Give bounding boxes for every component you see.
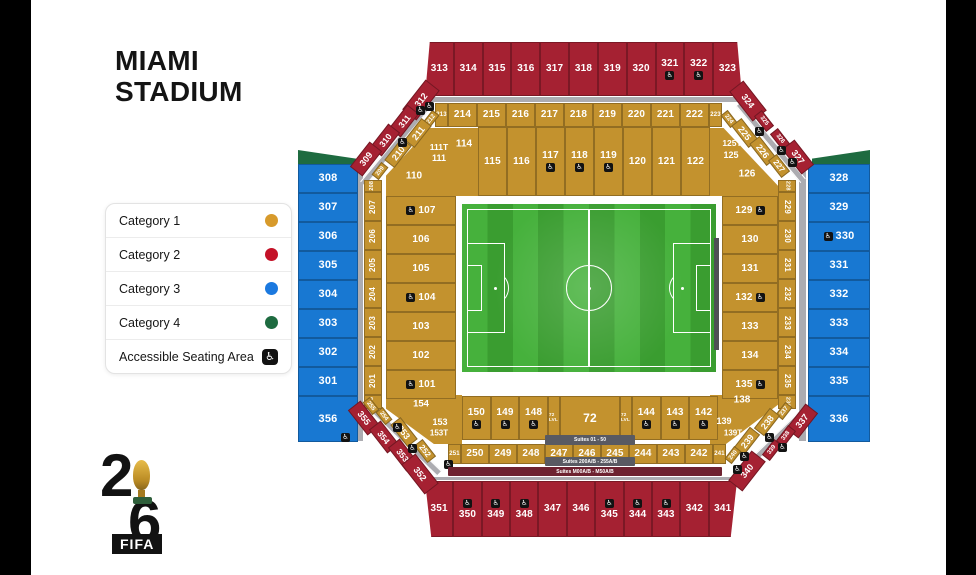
section-328[interactable]: 328 [808, 164, 870, 193]
suites-bar: Suites 200A/B - 255A/B [545, 457, 635, 466]
section-label: 144 [638, 408, 655, 418]
section-label: 207 [369, 200, 377, 214]
center-spot [588, 287, 591, 290]
section-329[interactable]: 329 [808, 193, 870, 222]
section-217[interactable]: 217 [535, 103, 564, 127]
section-label: 332 [830, 289, 849, 300]
section-203[interactable]: 203 [364, 308, 382, 337]
accessible-icon: ♿ [416, 106, 425, 115]
section-222[interactable]: 222 [680, 103, 709, 127]
section-label: 131 [741, 264, 758, 274]
tunnel-bar [714, 238, 719, 350]
section-label: 249 [494, 449, 511, 459]
accessible-icon: ♿ [777, 146, 786, 155]
section-349[interactable]: ♿349 [482, 481, 510, 537]
section-label: 222 [686, 110, 703, 120]
section-label: 356 [319, 414, 338, 425]
section-label: 134 [741, 351, 758, 361]
section-label: 129 [735, 206, 752, 216]
accessible-icon: ♿ [406, 206, 415, 215]
section-110[interactable]: 110 [406, 171, 422, 182]
section-320[interactable]: 320 [627, 42, 656, 96]
section-121[interactable]: 121 [652, 127, 681, 196]
pitch-boundary-line [467, 209, 711, 367]
section-label: 321 [661, 59, 678, 69]
stadium-seat-map-page: MIAMI STADIUM Category 1Category 2Catego… [0, 0, 976, 575]
section-label: 313 [431, 64, 448, 74]
section-label: 72 LVL [621, 413, 631, 422]
section-label: 302 [319, 347, 338, 358]
section-315[interactable]: 315 [483, 42, 512, 96]
section-105[interactable]: 105 [386, 254, 456, 283]
accessible-icon: ♿ [788, 158, 797, 167]
section-label: 150 [468, 408, 485, 418]
category4-corner[interactable] [298, 150, 356, 164]
section-label: 116 [513, 157, 530, 167]
upper-bowl-left: 308307306305304303302301356 [298, 164, 358, 442]
section-label: 235 [783, 374, 791, 388]
section-label: 220 [628, 110, 645, 120]
section-label: 308 [319, 173, 338, 184]
section-215[interactable]: 215 [477, 103, 506, 127]
category4-corner[interactable] [812, 150, 870, 164]
section-305[interactable]: 305 [298, 251, 358, 280]
section-label: 306 [319, 231, 338, 242]
walkway [418, 96, 750, 103]
accessible-icon: ♿ [671, 420, 680, 429]
section-204[interactable]: 204 [364, 279, 382, 308]
section-label: 304 [319, 289, 338, 300]
accessible-icon: ♿ [778, 443, 787, 452]
section-label: 248 [522, 449, 539, 459]
section-label: 317 [546, 64, 563, 74]
section-241[interactable]: 241 [713, 444, 726, 464]
section-205[interactable]: 205 [364, 250, 382, 279]
accessible-icon: ♿ [472, 420, 481, 429]
section-342[interactable]: 342 [680, 481, 708, 537]
section-235[interactable]: 235 [778, 366, 796, 395]
section-318[interactable]: 318 [569, 42, 598, 96]
section-label: 307 [319, 202, 338, 213]
stadium-map: 313314315316317318319320321♿322♿323351♿3… [0, 0, 976, 575]
lower-bowl-bottom: 150♿149♿148♿72 LVL7272 LVL144♿143♿142♿ [462, 396, 718, 440]
accessible-icon: ♿ [733, 465, 742, 474]
section-201[interactable]: 201 [364, 366, 382, 395]
section-221[interactable]: 221 [651, 103, 680, 127]
section-139[interactable]: 139 [716, 416, 731, 426]
section-332[interactable]: 332 [808, 280, 870, 309]
accessible-icon: ♿ [765, 433, 774, 442]
section-label: 217 [541, 110, 558, 120]
club-level-right: 228229230231232233234235236 [778, 180, 796, 409]
section-115[interactable]: 115 [478, 127, 507, 196]
lower-bowl-top: 115116117♿118♿119♿120121122 [478, 127, 710, 196]
section-label: 330 [836, 231, 855, 242]
section-142[interactable]: 142♿ [689, 396, 718, 440]
section-317[interactable]: 317 [540, 42, 569, 96]
section-label: 331 [830, 260, 849, 271]
section-label: 105 [412, 264, 429, 274]
pitch [462, 204, 716, 372]
accessible-icon: ♿ [520, 499, 529, 508]
section-334[interactable]: 334 [808, 338, 870, 367]
section-label: 121 [658, 157, 675, 167]
club-level-top: 213214215216217218219220221222223 [435, 103, 722, 127]
section-306[interactable]: 306 [298, 222, 358, 251]
accessible-icon: ♿ [529, 420, 538, 429]
section-label: 341 [714, 504, 731, 514]
accessible-icon: ♿ [824, 232, 833, 241]
section-label: 348 [516, 510, 533, 520]
accessible-icon: ♿ [406, 380, 415, 389]
section-label: 101 [418, 380, 435, 390]
section-label: 241 [714, 451, 725, 457]
accessible-icon: ♿ [756, 380, 765, 389]
section-label: 301 [319, 376, 338, 387]
section-label: 122 [687, 157, 704, 167]
section-label: 130 [741, 235, 758, 245]
suites-bar: Suites 01 - 50 [545, 435, 635, 445]
section-label: 233 [783, 316, 791, 330]
section-label: 202 [369, 345, 377, 359]
section-341[interactable]: 341 [709, 481, 737, 537]
section-label: 149 [496, 408, 513, 418]
section-233[interactable]: 233 [778, 308, 796, 337]
section-346[interactable]: 346 [567, 481, 595, 537]
section-label: 314 [460, 64, 477, 74]
section-label: 229 [783, 200, 791, 214]
upper-bowl-right: 328329♿330331332333334335336 [808, 164, 870, 442]
section-label: 102 [412, 351, 429, 361]
section-134[interactable]: 134 [722, 341, 778, 370]
section-label: 319 [604, 64, 621, 74]
section-314[interactable]: 314 [454, 42, 483, 96]
section-322[interactable]: 322♿ [684, 42, 713, 96]
section-122[interactable]: 122 [681, 127, 710, 196]
lvl-label-cell: 72 LVL [620, 396, 632, 440]
section-231[interactable]: 231 [778, 250, 796, 279]
section-72[interactable]: 72 [560, 396, 620, 440]
section-label: 133 [741, 322, 758, 332]
section-label: 334 [830, 347, 849, 358]
section-label: 328 [830, 173, 849, 184]
section-153[interactable]: 153 [432, 417, 447, 427]
section-117[interactable]: 117♿ [536, 127, 565, 196]
section-label: 208 [370, 181, 376, 191]
section-350[interactable]: ♿350 [453, 481, 481, 537]
section-label: 230 [783, 229, 791, 243]
accessible-icon: ♿ [501, 420, 510, 429]
section-240[interactable]: 240 [725, 446, 742, 464]
section-308[interactable]: 308 [298, 164, 358, 193]
accessible-icon: ♿ [408, 444, 417, 453]
section-125[interactable]: 125 [723, 150, 738, 160]
penalty-area-right [673, 243, 711, 333]
section-307[interactable]: 307 [298, 193, 358, 222]
section-label: 243 [662, 449, 679, 459]
section-304[interactable]: 304 [298, 280, 358, 309]
accessible-icon: ♿ [642, 420, 651, 429]
section-label: 103 [412, 322, 429, 332]
section-143[interactable]: 143♿ [661, 396, 690, 440]
section-label: 345 [601, 510, 618, 520]
accessible-icon: ♿ [393, 423, 402, 432]
section-218[interactable]: 218 [564, 103, 593, 127]
section-label: 251 [449, 451, 460, 457]
section-label: 228 [784, 181, 790, 191]
section-label: 316 [517, 64, 534, 74]
section-label: 104 [418, 293, 435, 303]
accessible-icon: ♿ [633, 499, 642, 508]
section-219[interactable]: 219 [593, 103, 622, 127]
section-label: 118 [571, 151, 588, 161]
section-129[interactable]: 129♿ [722, 196, 778, 225]
section-label: 148 [525, 408, 542, 418]
section-label: 344 [629, 510, 646, 520]
penalty-arc-left [475, 271, 509, 305]
section-131[interactable]: 131 [722, 254, 778, 283]
section-111T[interactable]: 111T [430, 142, 448, 152]
section-150[interactable]: 150♿ [462, 396, 491, 440]
accessible-icon: ♿ [756, 293, 765, 302]
walkway [425, 476, 737, 481]
section-114[interactable]: 114 [456, 139, 472, 150]
section-103[interactable]: 103 [386, 312, 456, 341]
lower-bowl-right: 129♿130131132♿133134135♿ [722, 196, 778, 399]
penalty-arc-right [669, 271, 703, 305]
center-circle [566, 265, 612, 311]
section-label: 323 [719, 64, 736, 74]
section-144[interactable]: 144♿ [632, 396, 661, 440]
section-104[interactable]: ♿104 [386, 283, 456, 312]
section-label: 72 [583, 412, 597, 424]
section-248[interactable]: 248 [517, 444, 545, 464]
section-234[interactable]: 234 [778, 337, 796, 366]
club-level-left: 208207206205204203202201256 [364, 180, 382, 409]
section-228[interactable]: 228 [778, 180, 796, 192]
section-label: 216 [512, 110, 529, 120]
section-label: 132 [735, 293, 752, 303]
section-label: 305 [319, 260, 338, 271]
section-label: 117 [542, 151, 559, 161]
accessible-icon: ♿ [662, 499, 671, 508]
section-label: 329 [830, 202, 849, 213]
section-138[interactable]: 138 [734, 395, 751, 406]
section-214[interactable]: 214 [448, 103, 477, 127]
section-216[interactable]: 216 [506, 103, 535, 127]
accessible-icon: ♿ [341, 433, 350, 442]
section-345[interactable]: ♿345 [595, 481, 623, 537]
section-230[interactable]: 230 [778, 221, 796, 250]
accessible-icon: ♿ [755, 127, 764, 136]
section-303[interactable]: 303 [298, 309, 358, 338]
section-331[interactable]: 331 [808, 251, 870, 280]
section-250[interactable]: 250 [461, 444, 489, 464]
section-label: 221 [657, 110, 674, 120]
section-319[interactable]: 319 [598, 42, 627, 96]
penalty-spot-right [681, 287, 684, 290]
accessible-icon: ♿ [406, 293, 415, 302]
accessible-icon: ♿ [491, 499, 500, 508]
accessible-icon: ♿ [463, 499, 472, 508]
accessible-icon: ♿ [605, 499, 614, 508]
lower-bowl-left: ♿107106105♿104103102♿101 [386, 196, 456, 399]
section-321[interactable]: 321♿ [656, 42, 685, 96]
section-label: 214 [454, 110, 471, 120]
section-label: 242 [690, 449, 707, 459]
section-label: 343 [657, 510, 674, 520]
section-label: 322 [690, 59, 707, 69]
section-label: 115 [484, 157, 501, 167]
section-153T[interactable]: 153T [430, 429, 448, 438]
section-label: 349 [487, 510, 504, 520]
section-301[interactable]: 301 [298, 367, 358, 396]
section-330[interactable]: ♿330 [808, 222, 870, 251]
section-label: 318 [575, 64, 592, 74]
section-125T[interactable]: 125T [722, 138, 741, 148]
section-347[interactable]: 347 [538, 481, 566, 537]
walkway [799, 160, 806, 442]
section-242[interactable]: 242 [685, 444, 713, 464]
section-208[interactable]: 208 [364, 180, 382, 192]
section-label: 351 [431, 504, 448, 514]
section-202[interactable]: 202 [364, 337, 382, 366]
section-label: 119 [600, 151, 617, 161]
section-106[interactable]: 106 [386, 225, 456, 254]
section-102[interactable]: 102 [386, 341, 456, 370]
section-229[interactable]: 229 [778, 192, 796, 221]
section-206[interactable]: 206 [364, 221, 382, 250]
section-302[interactable]: 302 [298, 338, 358, 367]
section-label: 231 [783, 258, 791, 272]
accessible-icon: ♿ [546, 163, 555, 172]
section-label: 335 [830, 376, 849, 387]
accessible-icon: ♿ [740, 452, 749, 461]
section-111[interactable]: 111 [432, 153, 446, 163]
section-107[interactable]: ♿107 [386, 196, 456, 225]
section-118[interactable]: 118♿ [565, 127, 594, 196]
accessible-icon: ♿ [604, 163, 613, 172]
accessible-icon: ♿ [756, 206, 765, 215]
section-label: 250 [466, 449, 483, 459]
section-label: 205 [369, 258, 377, 272]
section-label: 107 [418, 206, 435, 216]
section-101[interactable]: ♿101 [386, 370, 456, 399]
suites-bar: Suites M00A/B - M50A/B [448, 467, 722, 476]
upper-bowl-bottom: 351♿350♿349♿348347346♿345♿344♿343342341 [425, 481, 737, 537]
section-label: 234 [783, 345, 791, 359]
section-243[interactable]: 243 [657, 444, 685, 464]
section-249[interactable]: 249 [489, 444, 517, 464]
section-344[interactable]: ♿344 [624, 481, 652, 537]
section-120[interactable]: 120 [623, 127, 652, 196]
accessible-icon: ♿ [665, 71, 674, 80]
section-label: 143 [666, 408, 683, 418]
section-label: 106 [412, 235, 429, 245]
section-label: 315 [488, 64, 505, 74]
penalty-area-left [467, 243, 505, 333]
penalty-spot-left [494, 287, 497, 290]
section-label: 204 [369, 287, 377, 301]
section-label: 336 [830, 414, 849, 425]
lvl-label-cell: 72 LVL [548, 396, 560, 440]
section-139T[interactable]: 139T [724, 429, 742, 438]
section-333[interactable]: 333 [808, 309, 870, 338]
section-label: 342 [686, 504, 703, 514]
section-label: 303 [319, 318, 338, 329]
section-154[interactable]: 154 [413, 399, 429, 410]
section-148[interactable]: 148♿ [519, 396, 548, 440]
accessible-icon: ♿ [694, 71, 703, 80]
section-label: 120 [629, 157, 646, 167]
section-label: 206 [369, 229, 377, 243]
section-label: 218 [570, 110, 587, 120]
section-label: 347 [544, 504, 561, 514]
section-label: 219 [599, 110, 616, 120]
section-348[interactable]: ♿348 [510, 481, 538, 537]
section-232[interactable]: 232 [778, 279, 796, 308]
section-132[interactable]: 132♿ [722, 283, 778, 312]
goal-area-left [467, 265, 482, 311]
accessible-icon: ♿ [425, 102, 434, 111]
section-133[interactable]: 133 [722, 312, 778, 341]
section-316[interactable]: 316 [511, 42, 540, 96]
section-label: 142 [695, 408, 712, 418]
section-label: 350 [459, 510, 476, 520]
section-label: 215 [483, 110, 500, 120]
halfway-line [588, 209, 590, 367]
accessible-icon: ♿ [398, 138, 407, 147]
accessible-icon: ♿ [699, 420, 708, 429]
section-label: 320 [632, 64, 649, 74]
section-label: 203 [369, 316, 377, 330]
section-207[interactable]: 207 [364, 192, 382, 221]
section-label: 333 [830, 318, 849, 329]
section-336[interactable]: 336 [808, 396, 870, 442]
accessible-icon: ♿ [575, 163, 584, 172]
section-116[interactable]: 116 [507, 127, 536, 196]
section-130[interactable]: 130 [722, 225, 778, 254]
section-label: 346 [572, 504, 589, 514]
section-label: 232 [783, 287, 791, 301]
section-label: 135 [735, 380, 752, 390]
section-label: 244 [634, 449, 651, 459]
section-220[interactable]: 220 [622, 103, 651, 127]
section-label: 72 LVL [549, 413, 559, 422]
section-126[interactable]: 126 [739, 169, 756, 180]
section-335[interactable]: 335 [808, 367, 870, 396]
section-label: 201 [369, 374, 377, 388]
section-343[interactable]: ♿343 [652, 481, 680, 537]
section-119[interactable]: 119♿ [594, 127, 623, 196]
section-149[interactable]: 149♿ [491, 396, 520, 440]
upper-bowl-top: 313314315316317318319320321♿322♿323 [425, 42, 742, 96]
goal-area-right [696, 265, 711, 311]
